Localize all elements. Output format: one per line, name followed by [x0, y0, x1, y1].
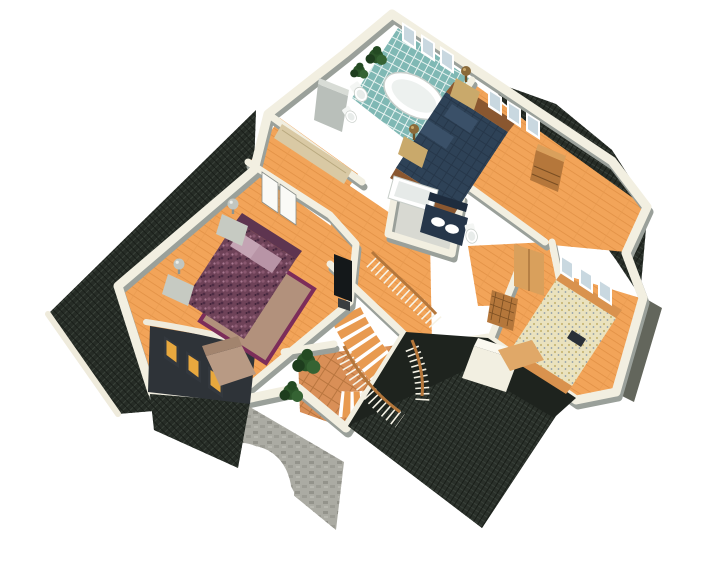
floor-plan-3d-render — [0, 0, 720, 576]
tv-cabinet — [334, 254, 352, 302]
floor-plan-render-stage — [0, 0, 720, 576]
